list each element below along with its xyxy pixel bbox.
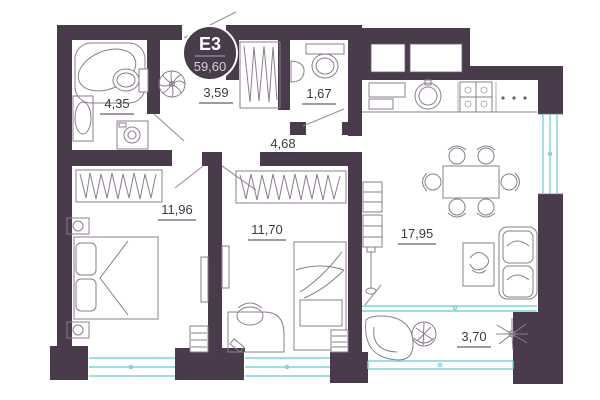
room-label-bedroom2: 11,70 [248,222,286,240]
shelf-unit-icon [363,182,382,247]
room-area-text: 4,35 [104,96,129,111]
dining-chair-icon [448,146,466,164]
room-label-hallway: 4,68 [266,136,300,154]
room-area-text: 3,59 [203,85,228,100]
kitchen-cabinet-icon [369,83,405,109]
room-area-text: 3,70 [461,329,486,344]
plan-badge: E3 59,60 [183,26,237,80]
balcony-chair-icon [366,316,413,360]
sink-wc-icon [291,61,304,82]
dining-set-icon [423,146,520,217]
wardrobe-bedroom1-icon [76,170,162,202]
badge-total-area: 59,60 [194,59,227,74]
plant-icon [412,322,436,346]
desk-icon [228,312,284,352]
room-area-text: 1,67 [306,86,331,101]
washing-machine-icon [117,121,148,149]
double-bed-icon [74,237,158,319]
room-label-wc: 1,67 [302,86,336,104]
dining-chair-icon [477,146,495,164]
stove-icon [460,82,492,112]
kitchen-sink-icon [415,80,441,109]
room-area-text: 11,96 [161,202,193,217]
dining-table-icon [443,166,499,198]
room-area-text: 17,95 [401,226,434,241]
sofa-icon [499,227,537,299]
desk-chair-icon [237,303,263,325]
dresser-bedroom1-icon [190,326,208,352]
coffee-table-icon [463,243,494,286]
tv-bedroom2-icon [222,246,229,288]
counter-knobs-icon [501,96,526,99]
floor-lamp-icon [366,247,376,294]
wc-door-icon [303,109,344,126]
closet-wardrobe-icon [240,42,280,108]
floor-plan: 4,35 3,59 1,67 4,68 11,96 11,70 17,95 3,… [0,0,600,400]
tv-bedroom1-icon [201,257,208,302]
room-label-kitchen-living: 17,95 [398,226,436,244]
dining-chair-icon [477,199,495,217]
room-label-corridor: 3,59 [199,85,233,103]
toilet-wc-icon [306,44,344,78]
toilet-bathroom-icon [113,69,148,92]
vent-fan-icon [159,71,185,97]
room-label-balcony: 3,70 [457,329,491,347]
dining-chair-icon [423,173,442,191]
room-area-text: 4,68 [270,136,295,151]
room-area-text: 11,70 [251,222,283,237]
dining-chair-icon [448,199,466,217]
dresser-bedroom2-icon [331,330,348,352]
dining-chair-icon [501,173,520,191]
badge-code: E3 [199,34,221,54]
bedroom2-door-icon [222,166,256,190]
bedroom1-door-icon [175,166,203,188]
room-label-bathroom: 4,35 [100,96,134,114]
vent-shafts [371,44,462,72]
bathroom-door-icon [154,114,184,141]
floor-plan-page: 4,35 3,59 1,67 4,68 11,96 11,70 17,95 3,… [0,0,600,400]
room-label-bedroom1: 11,96 [158,202,196,220]
